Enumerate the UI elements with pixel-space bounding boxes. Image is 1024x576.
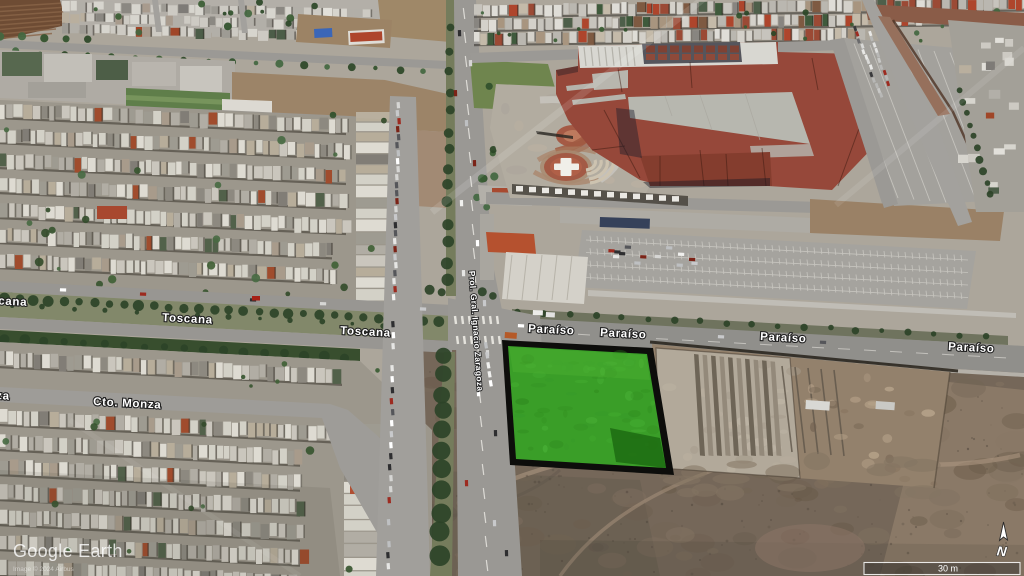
svg-text:Paraíso: Paraíso — [948, 341, 995, 355]
svg-text:30 m: 30 m — [938, 564, 958, 574]
svg-text:Paraíso: Paraíso — [760, 331, 807, 345]
svg-text:Google Earth: Google Earth — [13, 541, 123, 561]
svg-text:N: N — [996, 543, 1008, 559]
svg-text:Paraíso: Paraíso — [600, 327, 647, 341]
svg-text:Image © 2024 Airbus: Image © 2024 Airbus — [13, 565, 75, 573]
svg-text:scana: scana — [0, 295, 28, 309]
svg-text:Paraíso: Paraíso — [528, 323, 575, 337]
svg-text:za: za — [0, 390, 10, 403]
